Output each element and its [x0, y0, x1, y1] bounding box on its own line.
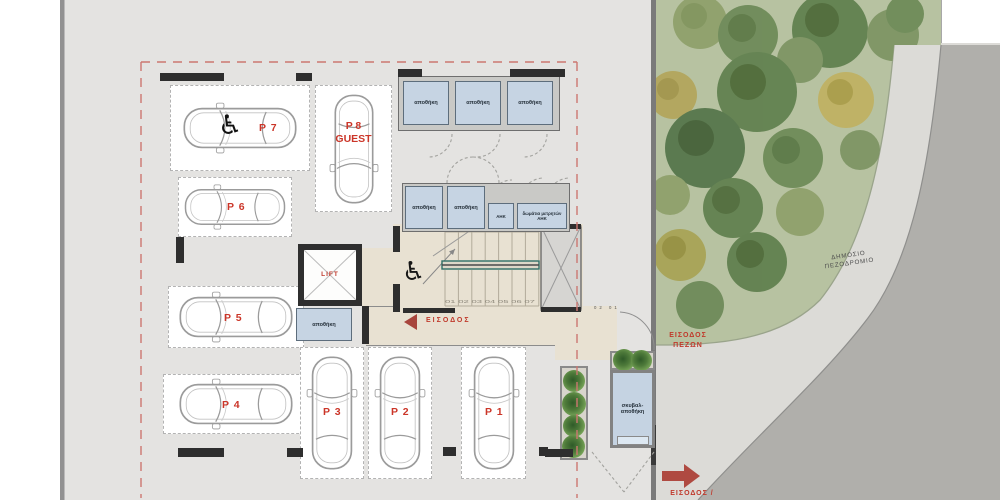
street-entrance-label: ΕΙΣΟΔΟΣ / [652, 490, 732, 497]
garden-lawn [656, 0, 941, 345]
pedestrian-arrow-icon [662, 464, 700, 488]
parking-stall-p6: P 6 [178, 177, 292, 237]
parking-stall-p7: ♿ P 7 [170, 85, 310, 171]
entrance-landing [555, 306, 617, 360]
column [176, 237, 184, 263]
garbage-room-window [617, 436, 649, 445]
entry-step-numbers: 02 01 [594, 305, 620, 310]
lift-storage-room: αποθήκη [296, 308, 352, 341]
parking-stall-p1: P 1 [461, 347, 526, 479]
meter-room: δωμάτια μετρητώνΑΗΚ [517, 203, 567, 229]
storage-room: αποθήκη [455, 81, 501, 125]
column [362, 306, 369, 344]
storage-room: αποθήκη [507, 81, 553, 125]
parking-stall-p8: P 8 GUEST [315, 85, 392, 212]
parking-stall-p4: P 4 [163, 374, 309, 434]
wall-segment [510, 69, 565, 77]
stair-core: 16 15 14 13 12 11 10 01 02 03 04 05 06 0… [393, 224, 583, 314]
wall-segment [296, 73, 312, 81]
stall-label-p8: P 8 GUEST [316, 120, 391, 146]
ground-floor-site-plan: 16 15 14 13 12 11 10 01 02 03 04 05 06 0… [0, 0, 1000, 500]
column [287, 448, 303, 457]
wheelchair-icon: ♿ [218, 112, 242, 139]
public-sidewalk [656, 0, 1000, 500]
stall-label-p7: P 7 [259, 122, 278, 134]
storage-room: αποθήκη [405, 186, 443, 229]
wheelchair-icon: ♿ [402, 257, 425, 287]
ahk-room: ΑΗΚ [488, 203, 514, 229]
entrance-arrow-icon [403, 313, 419, 331]
stall-label-p3: P 3 [323, 406, 342, 418]
column [443, 447, 456, 456]
trees [649, 0, 924, 329]
gate-swing [620, 312, 654, 350]
planter-strip [560, 366, 588, 460]
planter-entry [610, 351, 655, 370]
car-icon [328, 91, 380, 207]
wall-segment [545, 449, 573, 457]
lower-step-numbers: 01 02 03 04 05 06 07 [445, 299, 536, 304]
road [698, 45, 1000, 500]
elevator-shaft [541, 224, 581, 312]
west-boundary-wall [60, 0, 65, 500]
stall-label-p2: P 2 [391, 406, 410, 418]
parking-stall-p5: P 5 [168, 286, 304, 348]
staircase-drawing: 16 15 14 13 12 11 10 01 02 03 04 05 06 0… [393, 224, 583, 314]
stall-label-p4: P 4 [222, 399, 241, 411]
storage-room: αποθήκη [447, 186, 485, 229]
parking-stall-p2: P 2 [368, 347, 432, 479]
lift-label: LIFT [304, 271, 356, 278]
stall-label-p5: P 5 [224, 312, 243, 324]
main-entrance-label: ΕΙΣΟΔΟΣ [426, 317, 471, 324]
storage-room: αποθήκη [403, 81, 449, 125]
wall-segment [398, 69, 422, 77]
stall-label-p6: P 6 [227, 201, 246, 213]
curb-line [698, 45, 941, 500]
page-corner [941, 0, 1000, 43]
wall-segment [160, 73, 224, 81]
lift: LIFT [298, 244, 362, 306]
column [178, 448, 224, 457]
stall-label-p1: P 1 [485, 406, 504, 418]
parking-stall-p3: P 3 [300, 347, 364, 479]
sidewalk-label: ΔΗΜΟΣΙΟ ΠΕΖΟΔΡΟΜΙΟ [817, 248, 881, 272]
pedestrian-entrance-label: ΕΙΣΟΔΟΣ ΠΕΖΩΝ [662, 331, 714, 351]
